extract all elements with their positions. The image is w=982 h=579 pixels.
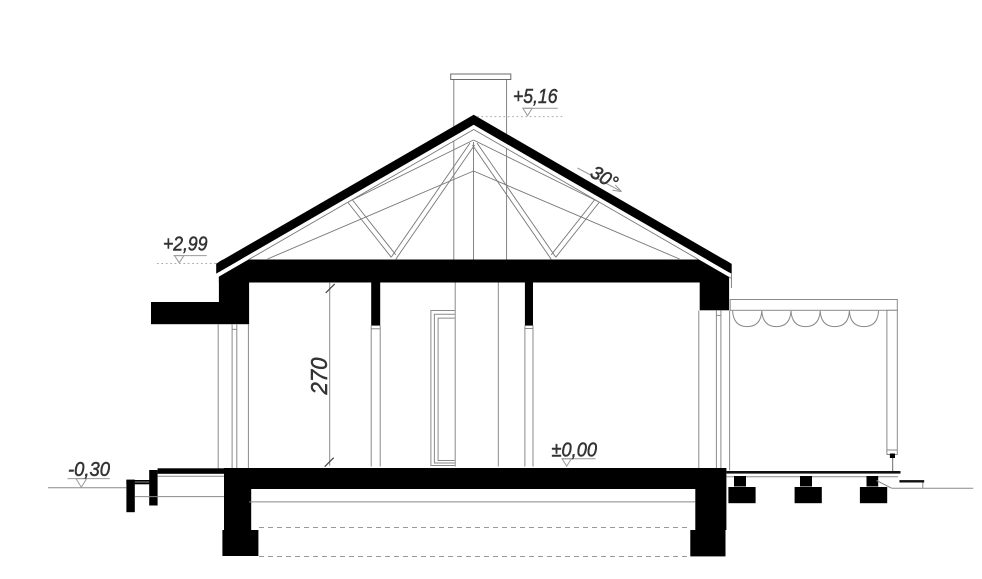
- svg-text:±0,00: ±0,00: [552, 439, 598, 462]
- svg-text:-0,30: -0,30: [68, 458, 111, 481]
- svg-text:270: 270: [306, 357, 332, 395]
- svg-text:+2,99: +2,99: [163, 233, 208, 256]
- svg-text:+5,16: +5,16: [513, 85, 558, 108]
